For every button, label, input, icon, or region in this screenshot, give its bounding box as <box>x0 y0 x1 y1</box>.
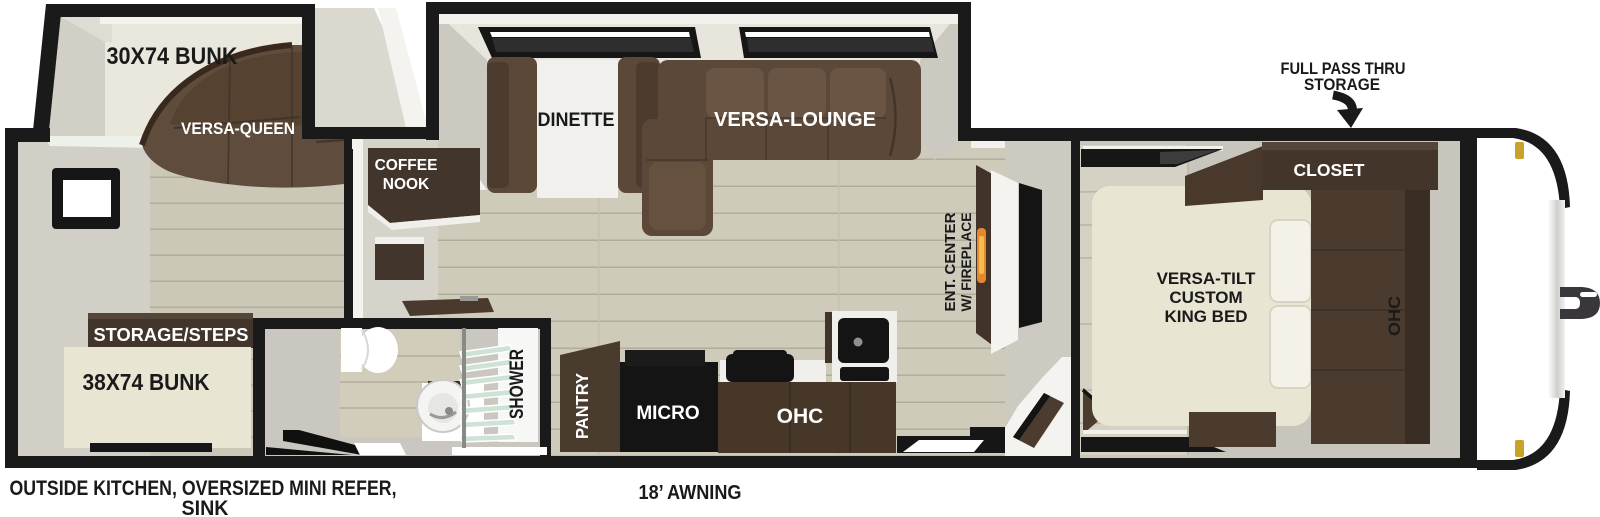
svg-text:MICRO: MICRO <box>636 403 699 424</box>
svg-text:KING BED: KING BED <box>1164 307 1247 326</box>
svg-text:SINK: SINK <box>182 497 229 517</box>
svg-text:30X74 BUNK: 30X74 BUNK <box>107 43 239 70</box>
svg-text:ENT. CENTER: ENT. CENTER <box>942 212 959 311</box>
svg-text:NOOK: NOOK <box>383 176 430 193</box>
svg-text:W/ FIREPLACE: W/ FIREPLACE <box>959 213 974 312</box>
svg-text:CUSTOM: CUSTOM <box>1169 288 1242 307</box>
svg-text:STORAGE/STEPS: STORAGE/STEPS <box>94 324 249 345</box>
svg-text:VERSA-LOUNGE: VERSA-LOUNGE <box>714 108 876 131</box>
svg-text:OHC: OHC <box>777 405 824 428</box>
svg-text:OHC: OHC <box>1386 296 1404 336</box>
svg-text:PANTRY: PANTRY <box>572 373 592 439</box>
svg-text:38X74 BUNK: 38X74 BUNK <box>83 369 210 395</box>
svg-text:VERSA-TILT: VERSA-TILT <box>1157 269 1256 288</box>
svg-text:CLOSET: CLOSET <box>1294 160 1365 180</box>
svg-text:SHOWER: SHOWER <box>507 349 528 419</box>
svg-text:STORAGE: STORAGE <box>1304 75 1380 94</box>
svg-text:18’ AWNING: 18’ AWNING <box>639 481 742 504</box>
svg-text:COFFEE: COFFEE <box>375 157 438 174</box>
svg-text:VERSA-QUEEN: VERSA-QUEEN <box>181 120 295 138</box>
svg-text:DINETTE: DINETTE <box>538 109 615 131</box>
